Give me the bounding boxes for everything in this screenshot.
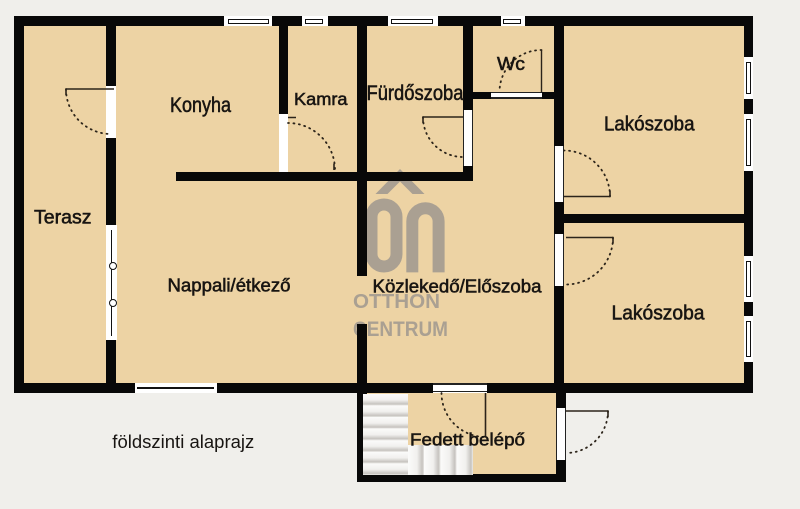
- svg-text:Lakószoba: Lakószoba: [604, 114, 695, 136]
- svg-text:Kamra: Kamra: [294, 89, 348, 109]
- svg-text:Fedett belépő: Fedett belépő: [410, 430, 525, 450]
- svg-text:Közlekedő/Előszoba: Közlekedő/Előszoba: [373, 277, 543, 297]
- svg-text:földszinti alaprajz: földszinti alaprajz: [112, 432, 254, 452]
- svg-text:Lakószoba: Lakószoba: [612, 303, 706, 325]
- svg-text:Nappali/étkező: Nappali/étkező: [168, 276, 291, 296]
- svg-text:Terasz: Terasz: [34, 207, 92, 229]
- svg-text:Konyha: Konyha: [170, 94, 231, 117]
- svg-text:Fürdőszoba: Fürdőszoba: [367, 82, 464, 105]
- svg-text:Wc: Wc: [497, 54, 525, 74]
